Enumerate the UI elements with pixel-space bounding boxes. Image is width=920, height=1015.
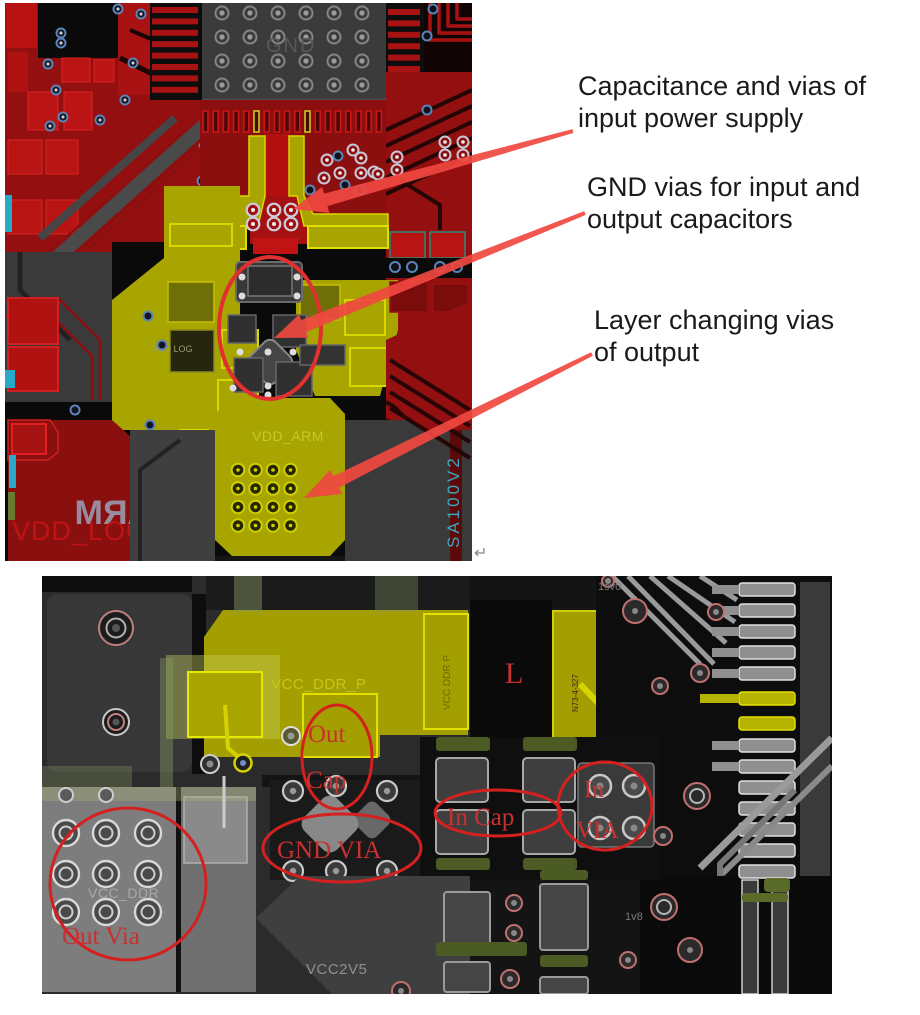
svg-text:VDD_ARM: VDD_ARM xyxy=(252,428,324,444)
svg-text:1v8: 1v8 xyxy=(625,911,643,923)
svg-text:VCC_DDR_P: VCC_DDR_P xyxy=(271,676,366,693)
svg-text:Out: Out xyxy=(308,721,346,748)
svg-text:In: In xyxy=(584,777,604,803)
svg-text:output capacitors: output capacitors xyxy=(587,204,793,234)
svg-text:SA100V2: SA100V2 xyxy=(444,455,463,548)
svg-text:VCC_DDR: VCC_DDR xyxy=(88,885,159,901)
svg-text:L: L xyxy=(505,657,523,690)
svg-text:VDD_LOG: VDD_LOG xyxy=(12,516,148,546)
svg-text:input power supply: input power supply xyxy=(578,103,804,133)
svg-text:VCC DDR P: VCC DDR P xyxy=(442,655,453,710)
svg-text:Cap: Cap xyxy=(306,767,346,794)
svg-text:GND VIA: GND VIA xyxy=(277,837,381,864)
svg-text:VCC2V5: VCC2V5 xyxy=(306,961,367,978)
svg-text:GND vias for input and: GND vias for input and xyxy=(587,172,860,202)
svg-text:Layer changing vias: Layer changing vias xyxy=(594,305,834,335)
svg-text:VIA: VIA xyxy=(576,818,619,844)
svg-text:In Cap: In Cap xyxy=(447,804,514,831)
svg-text:1sv0: 1sv0 xyxy=(598,581,621,593)
svg-text:↵: ↵ xyxy=(474,545,487,562)
svg-text:GND: GND xyxy=(266,35,316,57)
svg-text:Out Via: Out Via xyxy=(62,923,140,950)
svg-text:N73-4-327: N73-4-327 xyxy=(571,674,580,712)
svg-text:of output: of output xyxy=(594,337,700,367)
svg-text:Capacitance and vias of: Capacitance and vias of xyxy=(578,71,867,101)
